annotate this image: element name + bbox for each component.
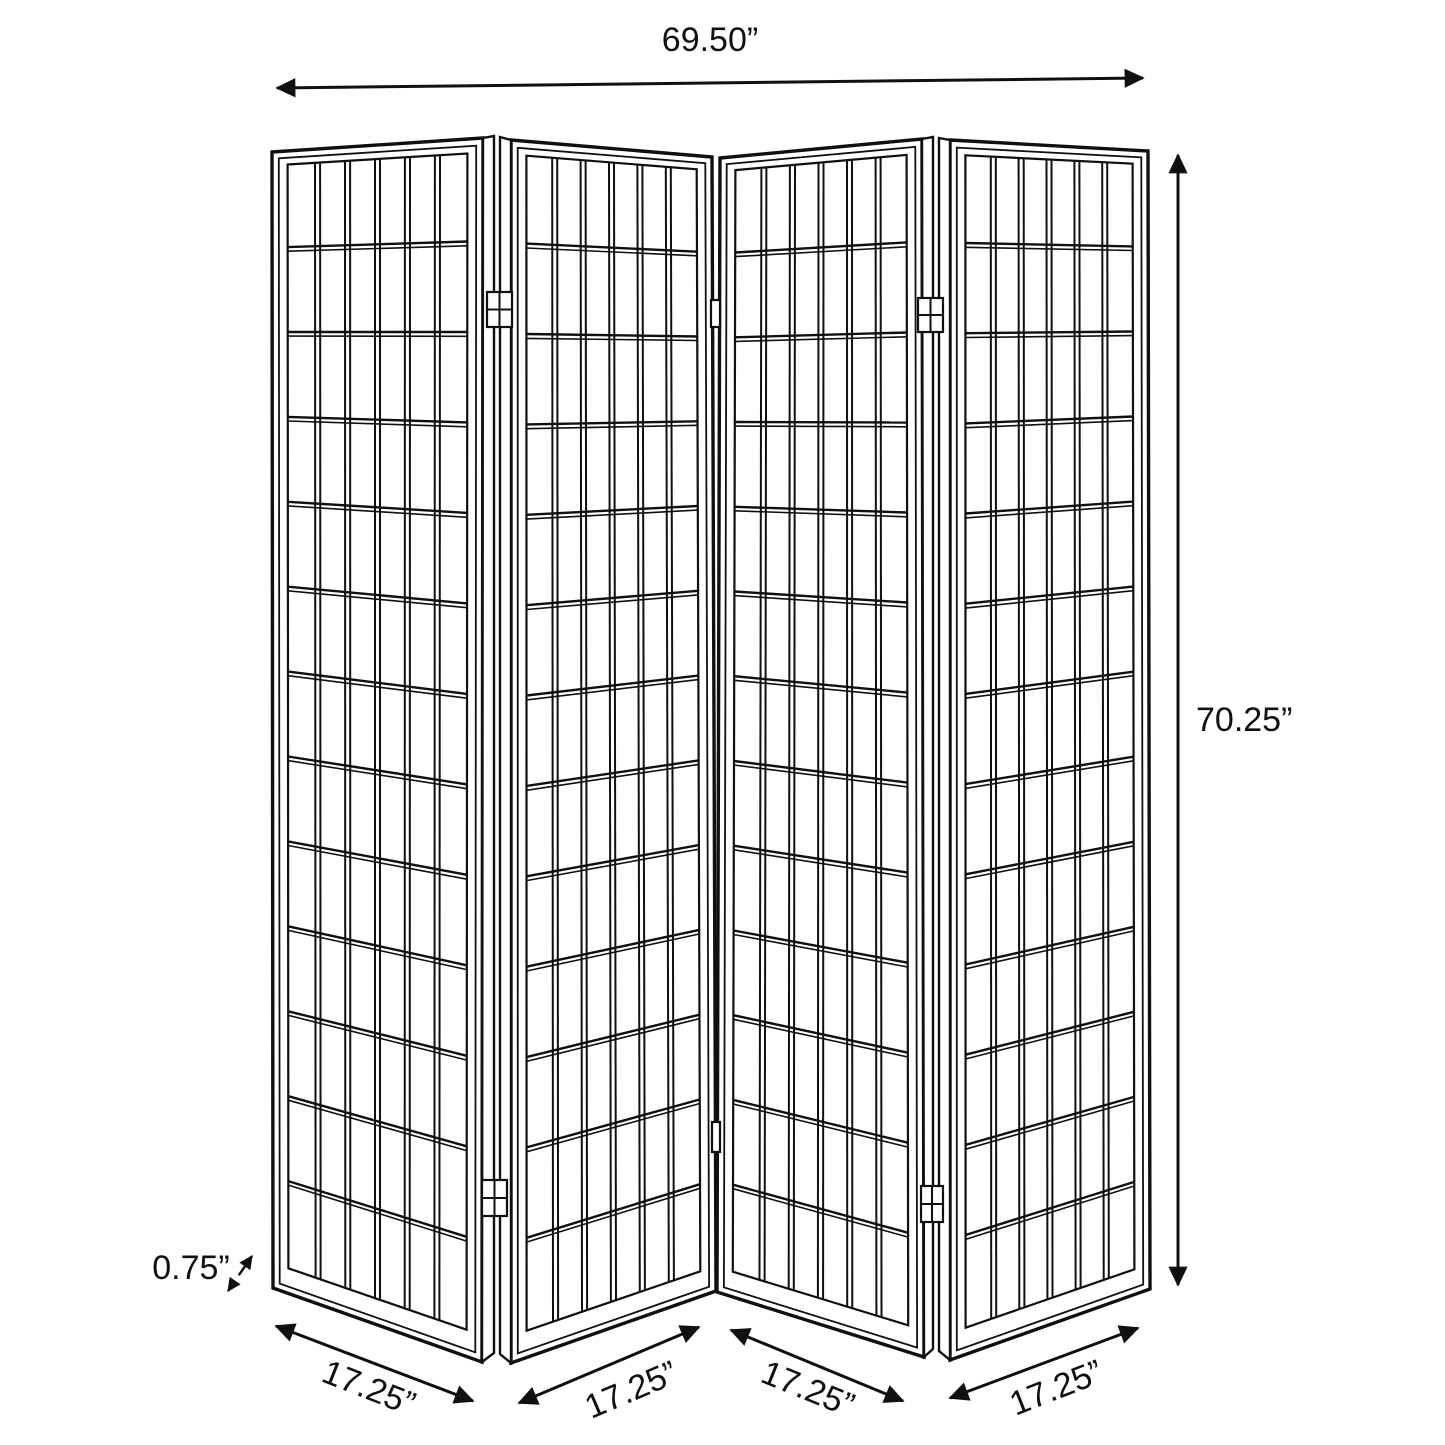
panel-4 <box>950 140 1150 1360</box>
dimension-label-overall-height: 70.25” <box>1196 701 1292 739</box>
dimension-label-overall-width: 69.50” <box>662 21 758 59</box>
room-divider-dimension-diagram: 69.50”70.25”17.25”17.25”17.25”17.25”0.75… <box>0 0 1445 1445</box>
hinge <box>487 292 512 327</box>
dimension-panel-3-width: 17.25” <box>731 1330 903 1425</box>
diagram-canvas: 69.50”70.25”17.25”17.25”17.25”17.25”0.75… <box>0 0 1445 1445</box>
panel-3 <box>717 139 924 1357</box>
panel-1 <box>272 138 483 1362</box>
panel-2 <box>511 140 716 1363</box>
dimension-label-panel-1-width: 17.25” <box>317 1353 421 1424</box>
hinge <box>712 1122 720 1152</box>
dimension-panel-thickness: 0.75” <box>152 1249 252 1291</box>
dimension-overall-height: 70.25” <box>1178 155 1292 1285</box>
dimension-label-panel-3-width: 17.25” <box>756 1353 860 1424</box>
hinge <box>918 298 943 332</box>
hinge <box>482 1180 507 1216</box>
dimension-label-panel-2-width: 17.25” <box>579 1354 683 1427</box>
dimension-label-panel-4-width: 17.25” <box>1004 1353 1108 1424</box>
hinge <box>711 300 720 327</box>
dimension-label-panel-thickness: 0.75” <box>152 1249 230 1287</box>
dimension-overall-width: 69.50” <box>277 21 1143 88</box>
hinge <box>921 1186 943 1222</box>
